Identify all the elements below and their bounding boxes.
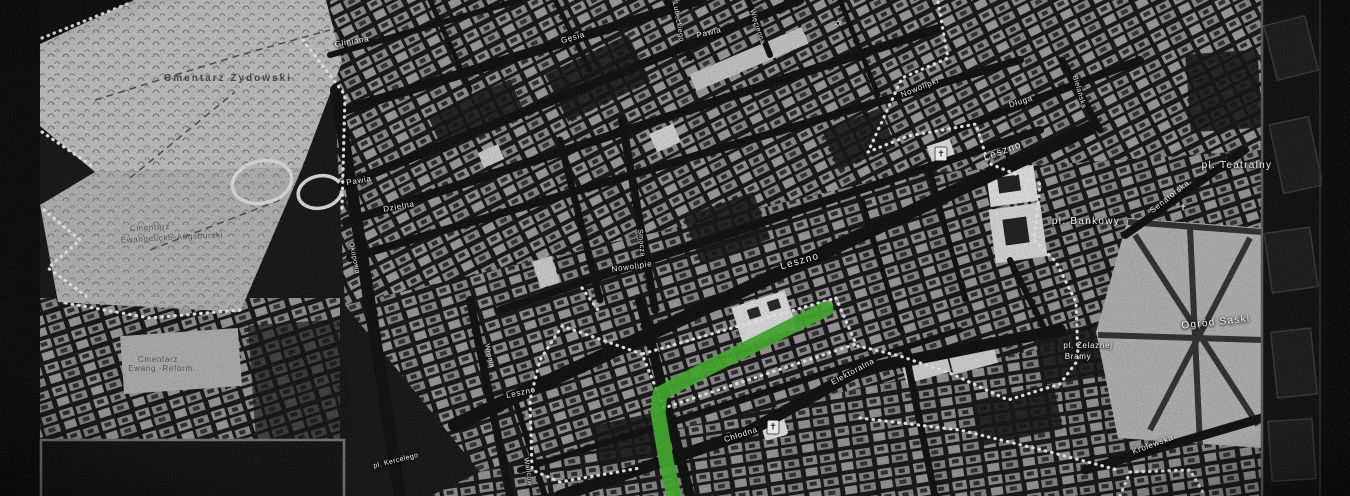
historical-map: Cmentarz Żydowski Cmentarz Ewangelicko-A… [0,0,1350,496]
cemetery-label: Cmentarz [138,356,178,364]
square-label: Bramy [1065,353,1092,361]
square-label: pl. Teatralny [1202,161,1273,171]
cemetery-label: Ewang.-Reform. [128,365,196,373]
square-label: pl. Bankowy [1052,217,1120,227]
church-cross-icon: ✝ [1178,202,1189,215]
synagogue-star-icon: ✡ [834,20,842,30]
square-label: pl. Żelaznej [1063,342,1112,350]
church-cross-icon: ✝ [768,421,779,434]
cemetery-label: Cmentarz Żydowski [164,74,292,84]
church-cross-icon: ✝ [936,148,947,161]
